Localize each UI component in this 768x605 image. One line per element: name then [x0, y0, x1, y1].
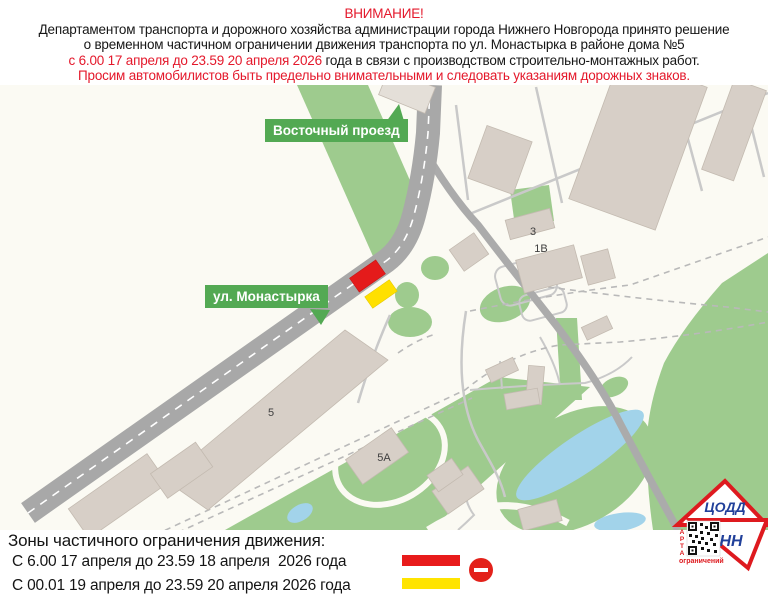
header-line-3-dates: с 6.00 17 апреля до 23.59 20 апреля 2026: [68, 53, 321, 68]
header-line-2: о временном частичном ограничении движен…: [0, 37, 768, 53]
logo-letter: Р: [680, 536, 685, 543]
logo-letter: А: [680, 529, 685, 536]
map-area: 3 1В 5 5А Восточный проезд ул. Монастырк…: [0, 85, 768, 530]
building-label-5: 5: [268, 407, 274, 419]
building-label-5a: 5А: [377, 452, 391, 464]
building: [581, 249, 616, 285]
street-label-vostochny: Восточный проезд: [265, 119, 408, 142]
codd-nn-logo: ЦОДД НН К А Р: [670, 472, 768, 600]
building: [569, 85, 707, 230]
notice-header: ВНИМАНИЕ! Департаментом транспорта и дор…: [0, 0, 768, 85]
logo-vertical-word: К А Р Т А: [680, 522, 685, 557]
minor-road-fork-stub: [456, 105, 468, 200]
legend-red-bar: [402, 555, 460, 566]
logo-letter: Т: [680, 543, 684, 550]
logo-caption: ограничений: [679, 557, 724, 565]
header-line-4: Просим автомобилистов быть предельно вни…: [0, 68, 768, 84]
building: [449, 233, 488, 272]
logo-city-text: НН: [719, 533, 743, 550]
legend-yellow-bar: [402, 578, 460, 589]
legend-red-bar-swatch: [402, 555, 460, 566]
dashed-branch-curve: [398, 334, 436, 353]
legend-row-2-label: С 00.01 19 апреля до 23.59 20 апреля 202…: [12, 577, 351, 595]
building-1v: [516, 245, 583, 293]
qr-code: [687, 521, 720, 556]
green-blob-3: [395, 282, 419, 308]
building-label-3: 3: [530, 226, 536, 238]
legend-yellow-bar-swatch: [402, 578, 460, 589]
green-blob-4: [388, 307, 432, 337]
header-line-3: с 6.00 17 апреля до 23.59 20 апреля 2026…: [0, 53, 768, 69]
building: [379, 85, 436, 113]
building: [468, 125, 532, 194]
building-label-1v: 1В: [534, 243, 547, 255]
building: [702, 85, 767, 181]
attention-line: ВНИМАНИЕ!: [0, 6, 768, 22]
codd-logo-canvas: ЦОДД НН К А Р: [670, 472, 768, 600]
logo-letter: А: [680, 550, 685, 557]
map-canvas: 3 1В 5 5А: [0, 85, 768, 530]
header-line-1: Департаментом транспорта и дорожного хоз…: [0, 22, 768, 38]
logo-org-text: ЦОДД: [704, 499, 745, 515]
legend-title: Зоны частичного ограничения движения:: [8, 531, 325, 551]
street-label-monastyrka: ул. Монастырка: [205, 285, 328, 308]
header-line-3-rest: года в связи с производством строительно…: [322, 53, 700, 68]
no-entry-sign-icon: [469, 558, 493, 582]
no-entry-bar: [474, 568, 488, 572]
legend-row-1-label: С 6.00 17 апреля до 23.59 18 апреля 2026…: [12, 553, 346, 571]
green-blob-1: [421, 256, 449, 280]
building: [581, 316, 612, 341]
logo-letter: К: [680, 522, 684, 529]
